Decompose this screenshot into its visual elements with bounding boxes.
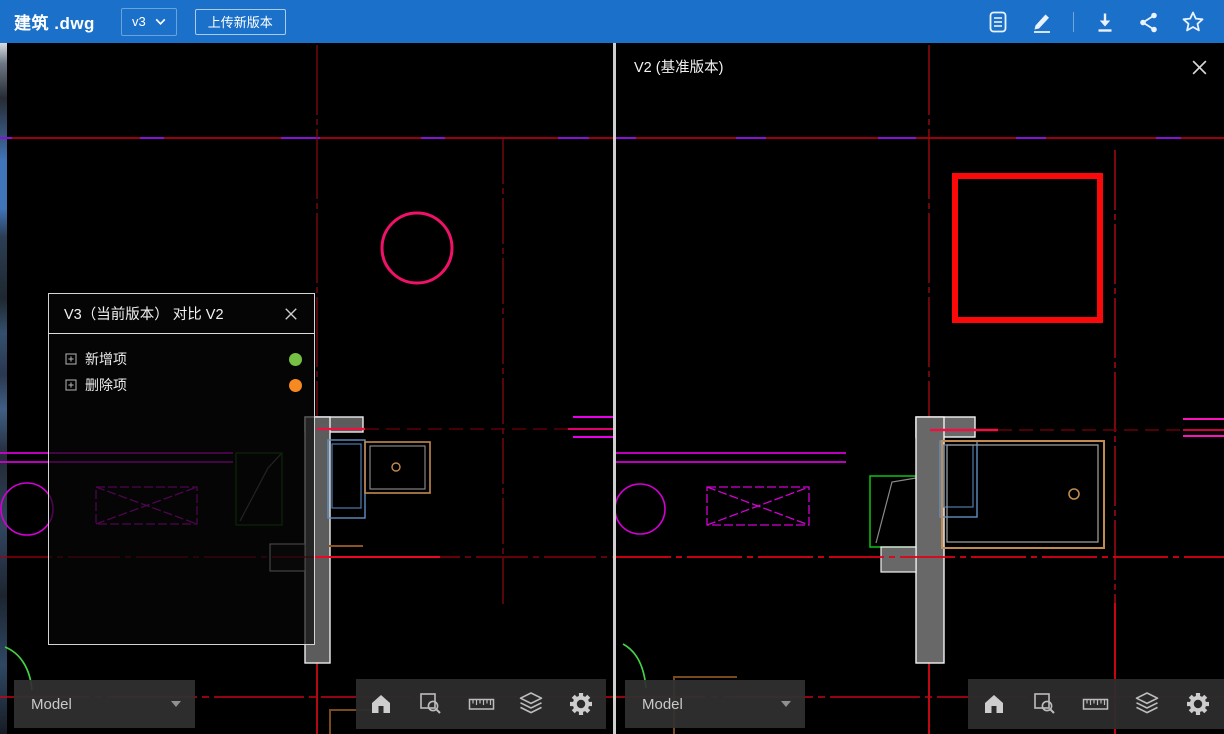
baseline-version-label: V2 (基准版本) (634, 56, 723, 77)
layers-button[interactable] (510, 679, 552, 729)
download-button[interactable] (1088, 5, 1122, 39)
compare-panel-title: V3（当前版本） 对比 V2 (64, 303, 224, 324)
zoom-window-button[interactable] (1024, 679, 1066, 729)
document-info-button[interactable] (981, 5, 1015, 39)
close-icon (1191, 59, 1208, 76)
right-view-toolbar (968, 679, 1224, 729)
home-button[interactable] (973, 679, 1015, 729)
pen-icon (1030, 10, 1054, 34)
share-icon (1137, 10, 1161, 34)
version-dropdown[interactable]: v3 (121, 8, 177, 36)
close-icon (284, 307, 298, 321)
download-icon (1093, 10, 1117, 34)
compare-group-added[interactable]: 新增项 (65, 346, 302, 372)
top-action-icons (981, 5, 1210, 39)
v3-added-circle-highlight (382, 213, 452, 283)
home-icon (368, 691, 394, 717)
caret-down-icon (171, 701, 181, 707)
file-title: 建筑 .dwg (14, 9, 95, 34)
right-sheet-dropdown[interactable]: Model (625, 680, 805, 728)
added-items-label: 新增项 (85, 349, 127, 369)
toolbar-divider (1073, 12, 1074, 32)
left-sheet-dropdown[interactable]: Model (14, 680, 195, 728)
compare-group-removed[interactable]: 删除项 (65, 372, 302, 398)
caret-down-icon (781, 701, 791, 707)
measure-button[interactable] (460, 679, 502, 729)
version-value: v3 (132, 14, 146, 29)
gear-icon (568, 691, 594, 717)
home-button[interactable] (360, 679, 402, 729)
zoom-window-icon (1032, 691, 1058, 717)
layers-icon (518, 691, 544, 717)
compare-panel-body: 新增项 删除项 (49, 334, 314, 398)
annotate-button[interactable] (1025, 5, 1059, 39)
right-drawing-canvas[interactable] (616, 43, 1224, 734)
layers-icon (1134, 691, 1160, 717)
left-sheet-label: Model (31, 696, 72, 713)
share-button[interactable] (1132, 5, 1166, 39)
left-view-toolbar (356, 679, 606, 729)
expand-plus-icon (65, 353, 77, 365)
removed-color-badge (289, 379, 302, 392)
upload-new-version-button[interactable]: 上传新版本 (195, 9, 286, 35)
drawing-stage: V2 (基准版本) V3（当前版本） 对比 V2 (0, 43, 1224, 734)
added-color-badge (289, 353, 302, 366)
settings-button[interactable] (1177, 679, 1219, 729)
close-compare-view-button[interactable] (1186, 54, 1212, 80)
settings-button[interactable] (560, 679, 602, 729)
compare-panel: V3（当前版本） 对比 V2 新增项 (48, 293, 315, 645)
document-icon (986, 10, 1010, 34)
home-icon (981, 691, 1007, 717)
v2-removed-box-highlight (955, 176, 1100, 320)
compare-panel-close-button[interactable] (280, 303, 302, 325)
star-icon (1181, 10, 1205, 34)
chevron-down-icon (155, 18, 166, 26)
ruler-icon (1082, 691, 1109, 717)
top-toolbar: 建筑 .dwg v3 上传新版本 (0, 0, 1224, 43)
zoom-window-button[interactable] (410, 679, 452, 729)
zoom-window-icon (418, 691, 444, 717)
gear-icon (1185, 691, 1211, 717)
ruler-icon (468, 691, 495, 717)
compare-panel-header: V3（当前版本） 对比 V2 (49, 294, 314, 334)
measure-button[interactable] (1075, 679, 1117, 729)
layers-button[interactable] (1126, 679, 1168, 729)
dwg-viewer-app: 建筑 .dwg v3 上传新版本 (0, 0, 1224, 734)
favorite-button[interactable] (1176, 5, 1210, 39)
right-sheet-label: Model (642, 696, 683, 713)
expand-plus-icon (65, 379, 77, 391)
removed-items-label: 删除项 (85, 375, 127, 395)
